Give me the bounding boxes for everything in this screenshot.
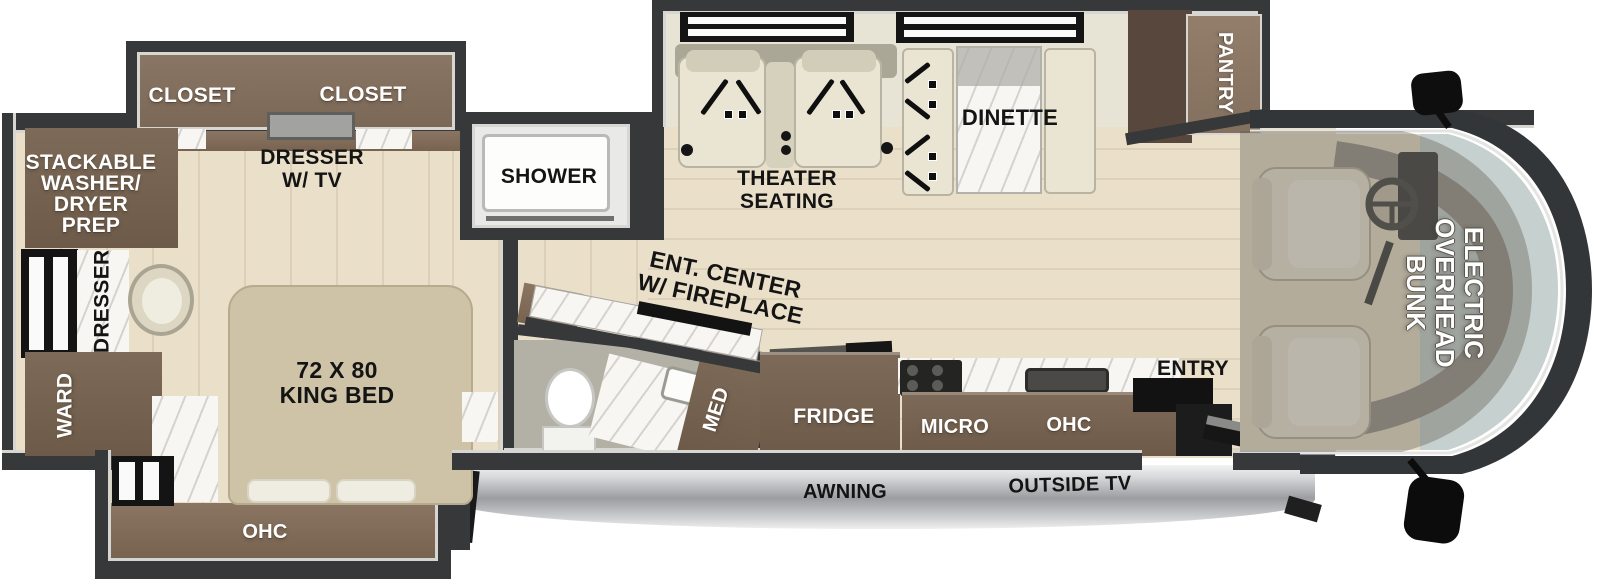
label-micro: MICRO (895, 417, 1015, 439)
strap-end (928, 172, 937, 181)
burner (932, 365, 943, 376)
label-king-bed: 72 X 80KING BED (262, 358, 412, 408)
cooktop (900, 360, 962, 396)
dresser-counter-right (356, 129, 412, 149)
label-outside-tv: OUTSIDE TV (990, 473, 1151, 499)
window-slat (53, 257, 68, 350)
label-washer-prep: STACKABLEWASHER/ DRYERPREP (15, 152, 167, 236)
vanity-sink-bowl (142, 278, 182, 324)
bed-slide-bottom-wall (95, 561, 451, 579)
label-theater-seating: THEATERSEATING (712, 168, 862, 213)
label-dinette: DINETTE (935, 106, 1085, 130)
label-ward: WARD (55, 350, 78, 460)
kitchen-sink (1025, 368, 1109, 393)
bed-pillow (247, 479, 331, 503)
bedroom-window (21, 249, 78, 358)
strap-end (832, 110, 841, 119)
strap-end (928, 80, 937, 89)
bedroom-left-wall (2, 113, 16, 470)
armrest-dot (881, 142, 893, 154)
rv-floorplan: CLOSET CLOSET DRESSERW/ TV STACKABLEWASH… (0, 0, 1600, 587)
shower-door (486, 216, 614, 221)
label-closet-left: CLOSET (132, 85, 252, 108)
window-slat (143, 462, 159, 500)
bedroom-tv (267, 112, 355, 140)
window-slat (904, 17, 1076, 24)
label-dresser-tv: DRESSERW/ TV (242, 147, 382, 192)
fridge (760, 352, 900, 456)
console-cupholder (781, 131, 791, 141)
window-slat (688, 17, 846, 24)
burner (907, 380, 918, 391)
label-shower: SHOWER (487, 166, 611, 189)
label-bedroom-ohc: OHC (205, 522, 325, 544)
label-closet-right: CLOSET (303, 84, 423, 107)
burner (932, 380, 943, 391)
strap-end (845, 110, 854, 119)
label-fridge: FRIDGE (774, 406, 894, 429)
body-bottom-wall (452, 450, 1142, 470)
label-pantry: PANTRY (1213, 13, 1235, 133)
label-awning: AWNING (775, 482, 915, 504)
nightstand-right (462, 392, 498, 442)
label-overhead-bunk: ELECTRIC OVERHEAD BUNK (1388, 143, 1488, 443)
theater-window (680, 12, 854, 42)
window-slat (904, 30, 1076, 37)
console-cupholder (781, 145, 791, 155)
burner (907, 365, 918, 376)
bed-pillow (336, 479, 416, 503)
dinette-table-shade (958, 48, 1040, 86)
label-dresser-side: DRESSER (92, 241, 115, 361)
window-slat (29, 257, 44, 350)
wall-right-of-shower (640, 112, 664, 240)
strap-end (928, 152, 937, 161)
strap-end (724, 110, 733, 119)
ward-cabinet (25, 352, 162, 456)
armrest-dot (681, 144, 693, 156)
window-slat (119, 462, 135, 500)
label-kitchen-ohc: OHC (1009, 415, 1129, 437)
theater-headrest (686, 50, 760, 72)
toilet-tank (542, 426, 596, 452)
dinette-window (896, 12, 1084, 43)
toilet-bowl (545, 368, 595, 428)
theater-headrest (802, 50, 876, 72)
bed-slide-window (112, 456, 174, 506)
window-slat (688, 29, 846, 36)
label-entry: ENTRY (1133, 358, 1253, 381)
strap-end (738, 110, 747, 119)
